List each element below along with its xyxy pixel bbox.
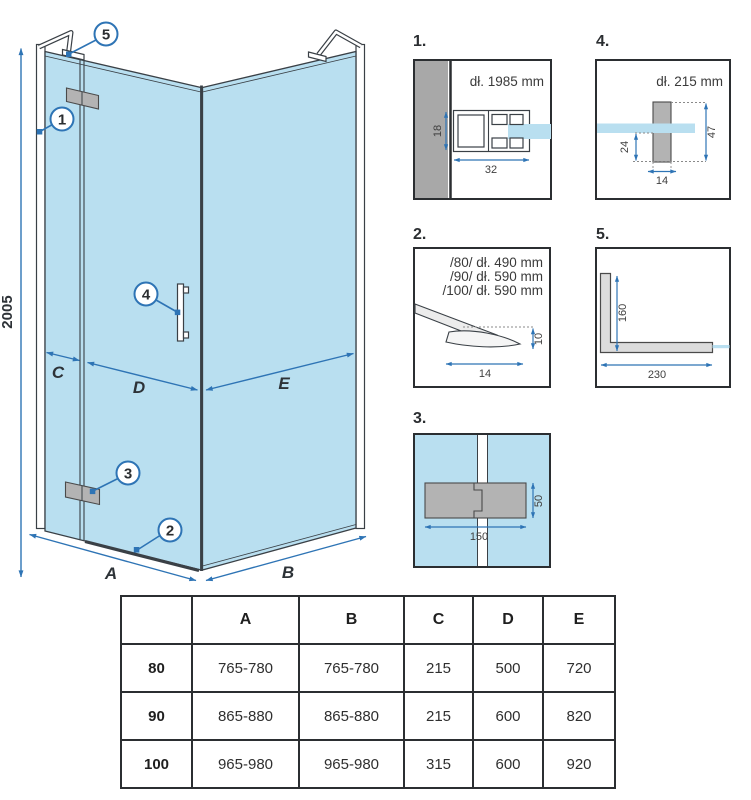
detail-label-3: 3. <box>413 410 426 428</box>
detail-4-dim-w: 14 <box>656 175 668 187</box>
row-90-a: 865-880 <box>192 692 299 740</box>
dim-label-c: C <box>52 363 65 382</box>
detail-5-dim-v: 160 <box>617 304 629 322</box>
dim-label-e: E <box>278 374 290 393</box>
table-row-100: 100 965-980 965-980 315 600 920 <box>121 740 615 788</box>
table-header-d: D <box>473 596 543 644</box>
detail-1-title: dł. 1985 mm <box>470 74 544 89</box>
table-header-empty <box>121 596 192 644</box>
callout-1-number: 1 <box>58 111 66 128</box>
table-row-80: 80 765-780 765-780 215 500 720 <box>121 644 615 692</box>
row-100-b: 965-980 <box>299 740 404 788</box>
dim-label-a: A <box>104 564 117 583</box>
row-90-d: 600 <box>473 692 543 740</box>
row-100-a: 965-980 <box>192 740 299 788</box>
callout-5: 5 <box>66 23 118 58</box>
height-dim-label: 2005 <box>0 295 16 328</box>
right-glass-panel <box>203 52 357 571</box>
callout-2-number: 2 <box>166 522 174 539</box>
detail-3-dim-h: 50 <box>533 495 545 507</box>
table-header-e: E <box>543 596 615 644</box>
detail-box-2: /80/ dł. 490 mm /90/ dł. 590 mm /100/ dł… <box>413 247 551 388</box>
detail-box-4: dł. 215 mm 47 24 14 <box>595 59 731 200</box>
technical-sheet: 2005 <box>0 0 751 800</box>
detail-1-dim-h: 18 <box>432 125 444 137</box>
table-header-row: A B C D E <box>121 596 615 644</box>
hinge-drawing <box>425 483 526 518</box>
detail-box-1: dł. 1985 mm 18 32 <box>413 59 552 200</box>
detail-4-title: dł. 215 mm <box>656 74 723 89</box>
detail-box-3: 150 50 <box>413 433 551 568</box>
detail-2-line3: /100/ dł. 590 mm <box>442 283 543 298</box>
detail-1-dim-w: 32 <box>485 164 497 176</box>
detail-label-1: 1. <box>413 33 426 51</box>
main-isometric-drawing: 2005 <box>0 0 400 595</box>
dimensions-table: A B C D E 80 765-780 765-780 215 500 720… <box>120 595 616 789</box>
callout-4-number: 4 <box>142 286 151 303</box>
right-wall-profile <box>356 45 365 529</box>
row-80-b: 765-780 <box>299 644 404 692</box>
detail-label-4: 4. <box>596 33 609 51</box>
left-wall-profile <box>37 45 46 529</box>
callout-5-number: 5 <box>102 26 110 43</box>
dim-label-b: B <box>282 563 294 582</box>
detail-2-dim-w: 14 <box>479 368 491 380</box>
row-80-label: 80 <box>121 644 192 692</box>
dim-label-d: D <box>133 378 145 397</box>
detail-label-2: 2. <box>413 226 426 244</box>
detail-box-5: 160 230 <box>595 247 731 388</box>
row-90-label: 90 <box>121 692 192 740</box>
detail-2-line2: /90/ dł. 590 mm <box>450 269 543 284</box>
detail-label-5: 5. <box>596 226 609 244</box>
detail-2-line1: /80/ dł. 490 mm <box>450 255 543 270</box>
row-80-a: 765-780 <box>192 644 299 692</box>
row-90-c: 215 <box>404 692 473 740</box>
row-80-d: 500 <box>473 644 543 692</box>
table-row-90: 90 865-880 865-880 215 600 820 <box>121 692 615 740</box>
row-100-d: 600 <box>473 740 543 788</box>
callout-3-number: 3 <box>124 465 132 482</box>
detail-5-dim-h: 230 <box>648 369 666 381</box>
detail-3-dim-w: 150 <box>470 531 488 543</box>
detail-4-dim-left: 24 <box>619 141 631 153</box>
detail-2-dim-h: 10 <box>533 333 545 345</box>
row-90-b: 865-880 <box>299 692 404 740</box>
table-header-b: B <box>299 596 404 644</box>
row-80-c: 215 <box>404 644 473 692</box>
row-90-e: 820 <box>543 692 615 740</box>
row-100-e: 920 <box>543 740 615 788</box>
row-100-c: 315 <box>404 740 473 788</box>
row-100-label: 100 <box>121 740 192 788</box>
table-header-a: A <box>192 596 299 644</box>
detail-4-dim-right: 47 <box>706 126 718 138</box>
row-80-e: 720 <box>543 644 615 692</box>
table-header-c: C <box>404 596 473 644</box>
height-dimension: 2005 <box>0 49 21 578</box>
